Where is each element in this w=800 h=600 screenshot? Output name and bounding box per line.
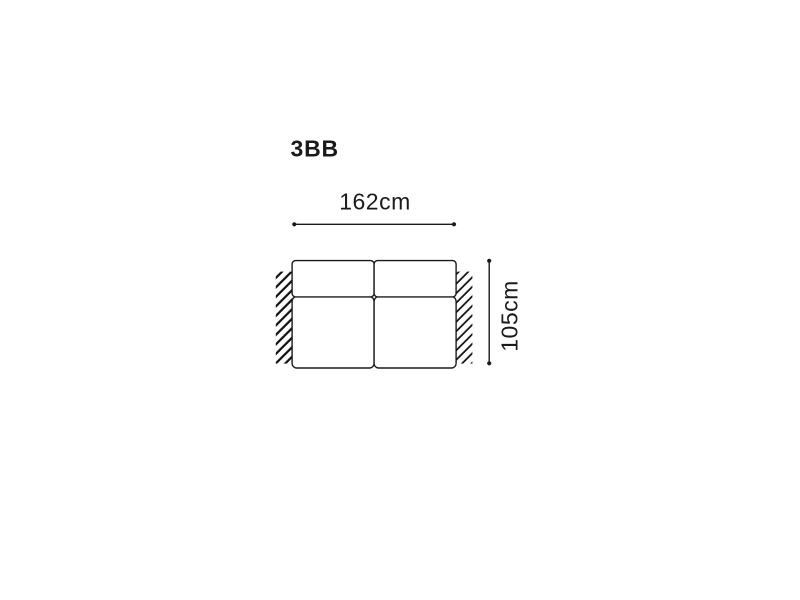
- svg-text:3BB: 3BB: [291, 136, 339, 162]
- svg-text:105cm: 105cm: [497, 280, 523, 352]
- svg-text:162cm: 162cm: [339, 189, 411, 215]
